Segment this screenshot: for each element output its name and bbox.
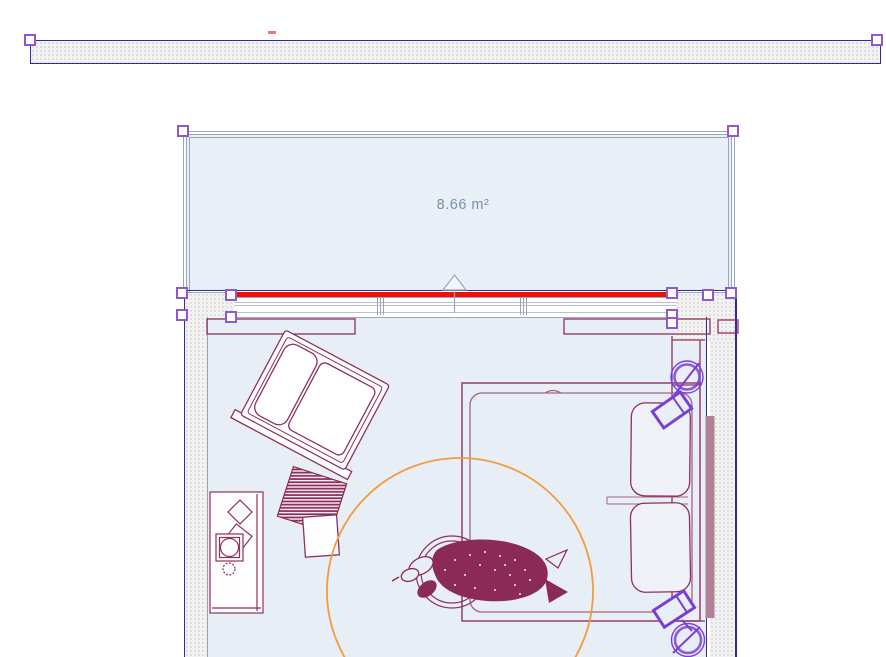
- armchair[interactable]: [231, 327, 396, 480]
- selection-handle-icon[interactable]: [666, 287, 678, 299]
- plant-pot: [223, 563, 235, 575]
- selection-handle-icon[interactable]: [176, 287, 188, 299]
- drawing-layer: [0, 0, 886, 657]
- window-opening-arrow-icon: [443, 275, 466, 313]
- selection-handle-icon[interactable]: [666, 317, 678, 329]
- ceiling-lamp-bottom[interactable]: [653, 591, 704, 657]
- selection-handle-icon[interactable]: [177, 125, 189, 137]
- desk-equipment: [216, 534, 243, 561]
- ceiling-lamp-top[interactable]: [652, 361, 703, 428]
- selection-handle-icon[interactable]: [176, 309, 188, 321]
- selection-handle-icon[interactable]: [871, 34, 883, 46]
- wall-shelf-outer[interactable]: [718, 320, 738, 333]
- selection-handle-icon[interactable]: [225, 311, 237, 323]
- selection-handle-icon[interactable]: [725, 287, 737, 299]
- selection-handle-icon[interactable]: [727, 125, 739, 137]
- selection-handle-icon[interactable]: [702, 289, 714, 301]
- dog[interactable]: [392, 539, 568, 603]
- desk[interactable]: [210, 492, 263, 613]
- radiator-bar[interactable]: [706, 416, 715, 618]
- pillow: [630, 403, 691, 593]
- floorplan-canvas: 8.66 m²: [0, 0, 886, 657]
- wall-shelf-right[interactable]: [564, 319, 710, 334]
- selection-handle-icon[interactable]: [24, 34, 36, 46]
- wall-speaker-icon[interactable]: [653, 591, 694, 627]
- selection-handle-icon[interactable]: [225, 289, 237, 301]
